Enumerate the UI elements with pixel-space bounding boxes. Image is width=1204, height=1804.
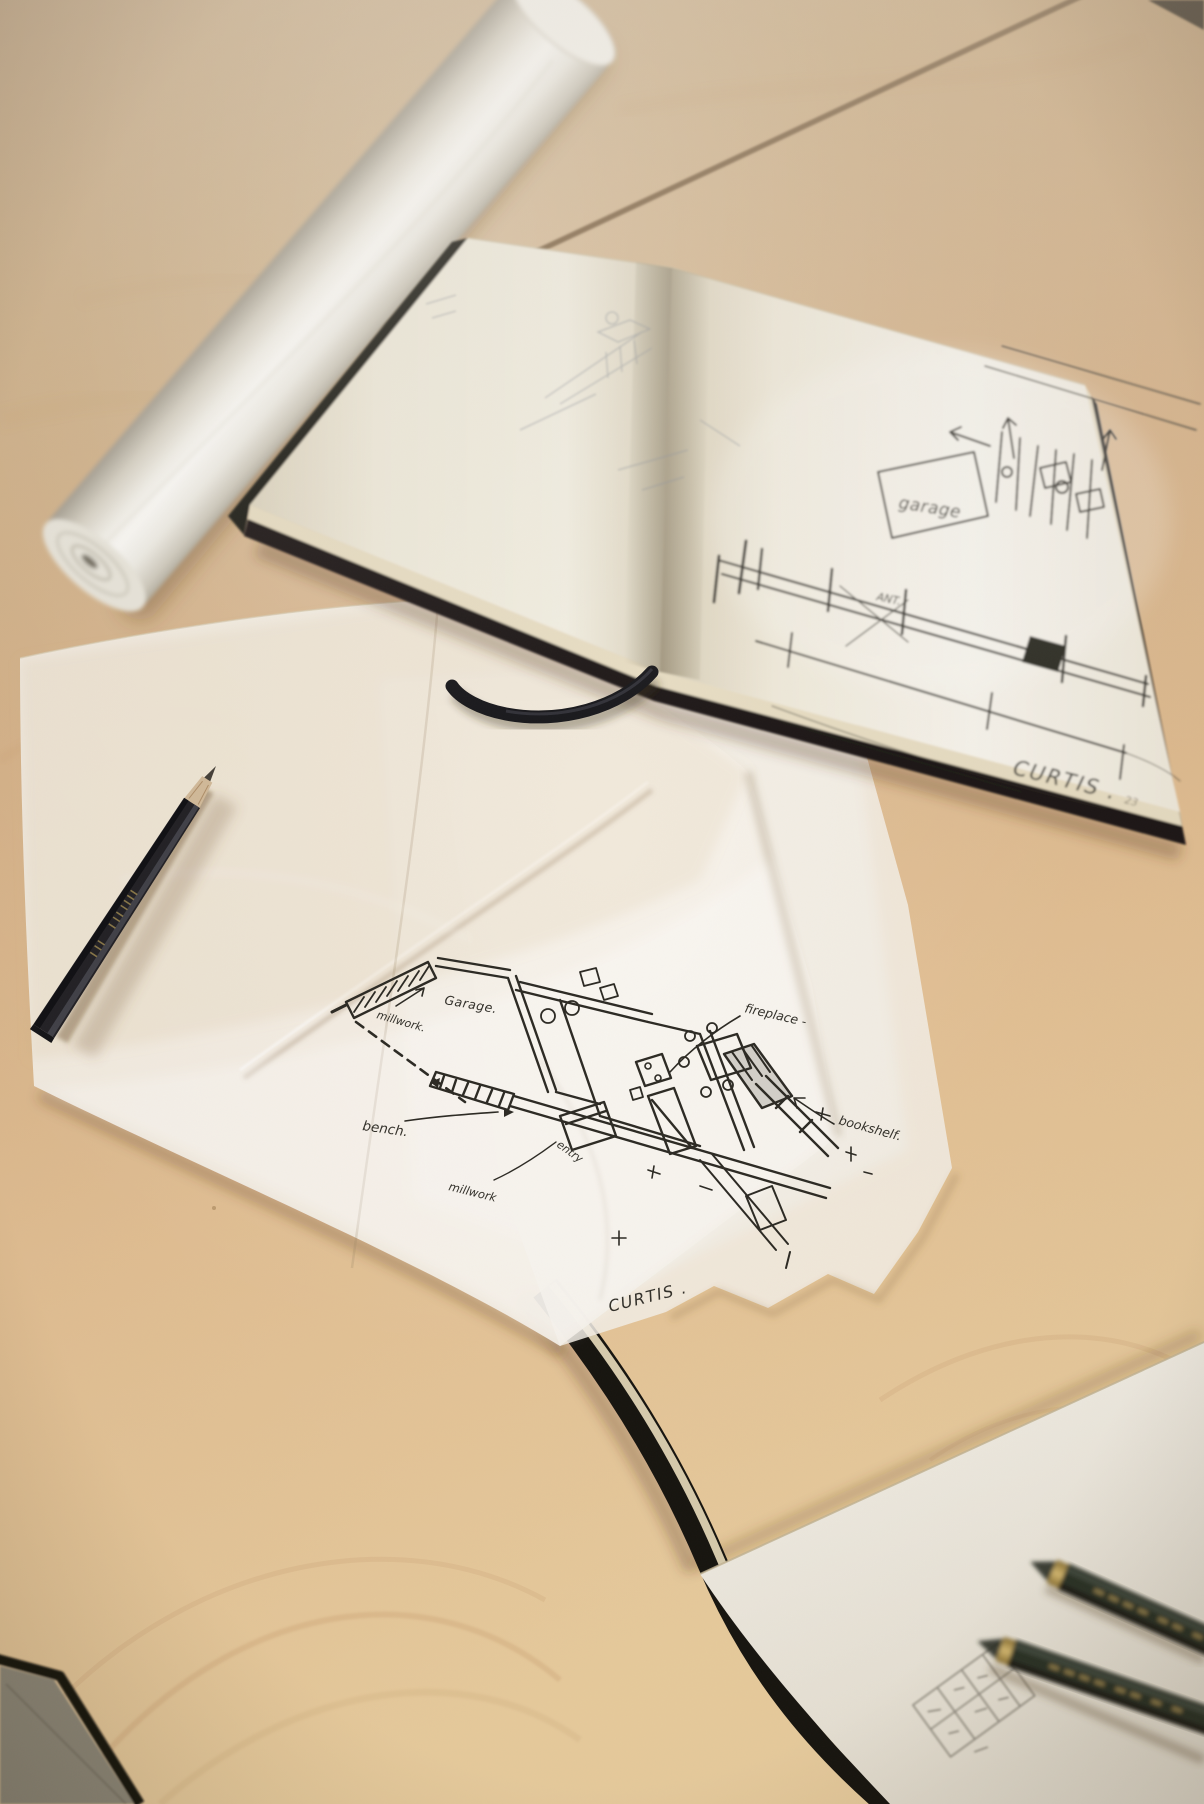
scene-canvas: Garage. millwork. fireplace - bookshelf.… — [0, 0, 1204, 1804]
photo-architectural-sketches: Garage. millwork. fireplace - bookshelf.… — [0, 0, 1204, 1804]
film-grain — [0, 0, 1204, 1804]
